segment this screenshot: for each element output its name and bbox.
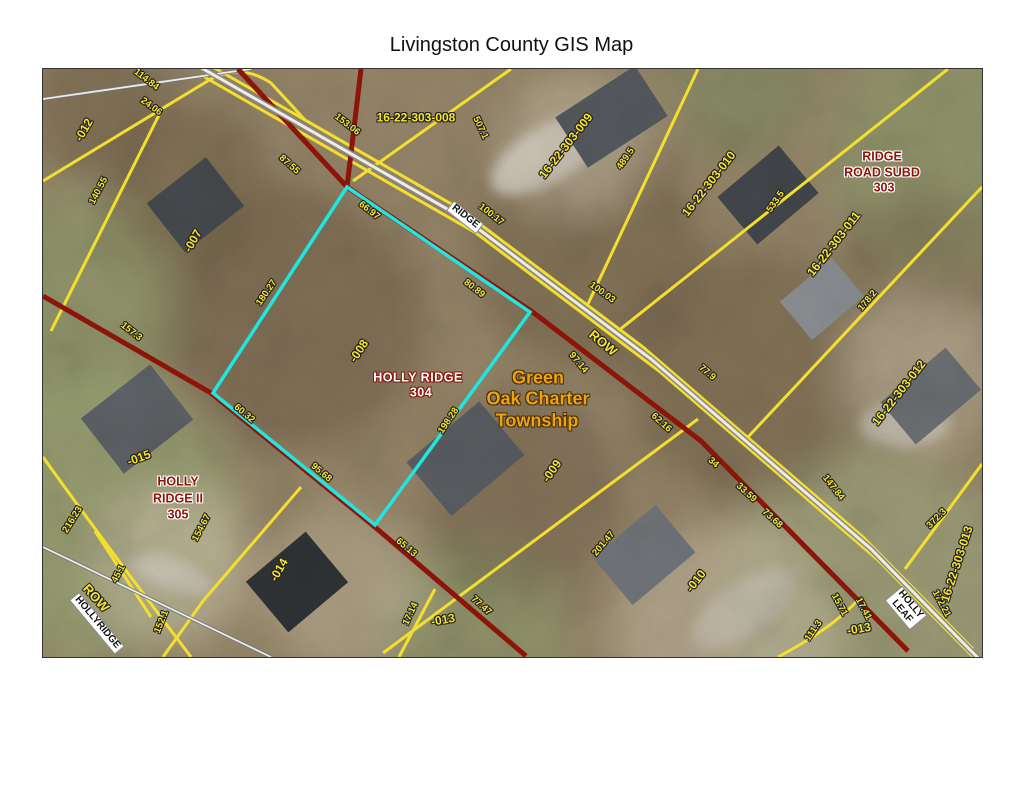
map-label: 154.67: [191, 513, 213, 543]
map-label: -010: [684, 568, 709, 595]
map-label: 34: [706, 456, 721, 470]
map-label: 489.5: [615, 146, 637, 171]
map-label: Township: [496, 412, 579, 431]
map-label: 16-22-303-012: [870, 358, 928, 428]
map-label: 87.55: [277, 153, 301, 176]
map-label: 16-22-303-010: [680, 149, 738, 219]
map-label: 80.89: [462, 278, 487, 300]
map-label: 178.2: [857, 289, 880, 314]
map-label: 533.5: [765, 189, 787, 214]
map-label: 97.14: [567, 351, 590, 376]
map-label: 17.14: [401, 601, 420, 627]
map-label: RIDGE: [862, 150, 902, 163]
map-label: -013: [430, 612, 456, 629]
map-label: HOLLY: [157, 475, 198, 488]
map-label: 33.59: [734, 481, 758, 504]
map-label: 507.1: [470, 115, 489, 141]
map-label: 24.06: [138, 96, 163, 118]
map-label: 16-22-303-009: [537, 111, 595, 181]
map-label: 45.1: [110, 563, 127, 584]
page-title: Livingston County GIS Map: [0, 34, 1023, 57]
map-label: 303: [874, 181, 895, 194]
map-label: 152.1: [153, 609, 171, 635]
map-label: 65.13: [394, 537, 419, 560]
map-label: 100.03: [587, 280, 616, 305]
map-label: RIDGE II: [153, 492, 203, 505]
map-label: 60.32: [232, 403, 257, 426]
map-label: ROW: [586, 328, 619, 359]
map-label: 16-22-303-011: [805, 209, 863, 278]
gis-map-page: Livingston County GIS Map: [0, 0, 1023, 791]
map-label: 305: [168, 508, 189, 521]
map-label: Oak Charter: [486, 390, 589, 409]
map-label: 62.16: [649, 411, 673, 434]
map-label: -012: [73, 116, 96, 143]
map-label: 111.3: [803, 619, 824, 643]
map-label: 372.3: [925, 507, 949, 531]
map-label: 77.9: [697, 363, 718, 383]
map-label: -015: [126, 448, 153, 468]
map-label: 17.41: [853, 596, 873, 622]
map-area: 114.8424.06153.0687.55140.55507.1489.553…: [42, 68, 983, 658]
map-label: -009: [540, 458, 564, 485]
map-label: 198.28: [437, 406, 462, 436]
map-label: 114.84: [132, 68, 161, 93]
map-label: 66.97: [357, 200, 382, 222]
map-label: 153.06: [332, 112, 361, 138]
map-label: 77.47: [469, 594, 493, 617]
map-labels-layer: 114.8424.06153.0687.55140.55507.1489.553…: [43, 69, 982, 657]
map-label: 140.55: [88, 176, 110, 206]
map-label: 147.84: [820, 473, 846, 502]
map-label: HOLLY RIDGE: [373, 371, 463, 384]
map-label: -007: [182, 227, 205, 254]
map-label: 157.3: [119, 321, 144, 343]
map-label: 95.68: [309, 462, 334, 485]
map-label: -014: [268, 556, 291, 583]
map-label: 16-22-303-008: [377, 112, 456, 125]
map-label: 216.23: [61, 505, 85, 535]
map-label: 15.71: [829, 592, 849, 618]
map-label: 201.47: [591, 530, 617, 559]
map-label: 304: [410, 386, 432, 399]
map-label: HOLLY LEAF: [885, 586, 928, 631]
map-label: ROAD SUBD: [844, 166, 920, 179]
legend-area: 9/19/2021, 9:13:41 PM Tax Parcel Parcel …: [0, 656, 1023, 791]
map-label: RIDGE: [446, 200, 483, 233]
map-label: Green: [512, 369, 564, 388]
map-label: 73.68: [760, 507, 784, 530]
map-label: 16-22-303-013: [939, 525, 975, 604]
map-label: -013: [846, 621, 872, 638]
map-label: -008: [347, 338, 371, 365]
map-label: 180.27: [255, 278, 280, 308]
